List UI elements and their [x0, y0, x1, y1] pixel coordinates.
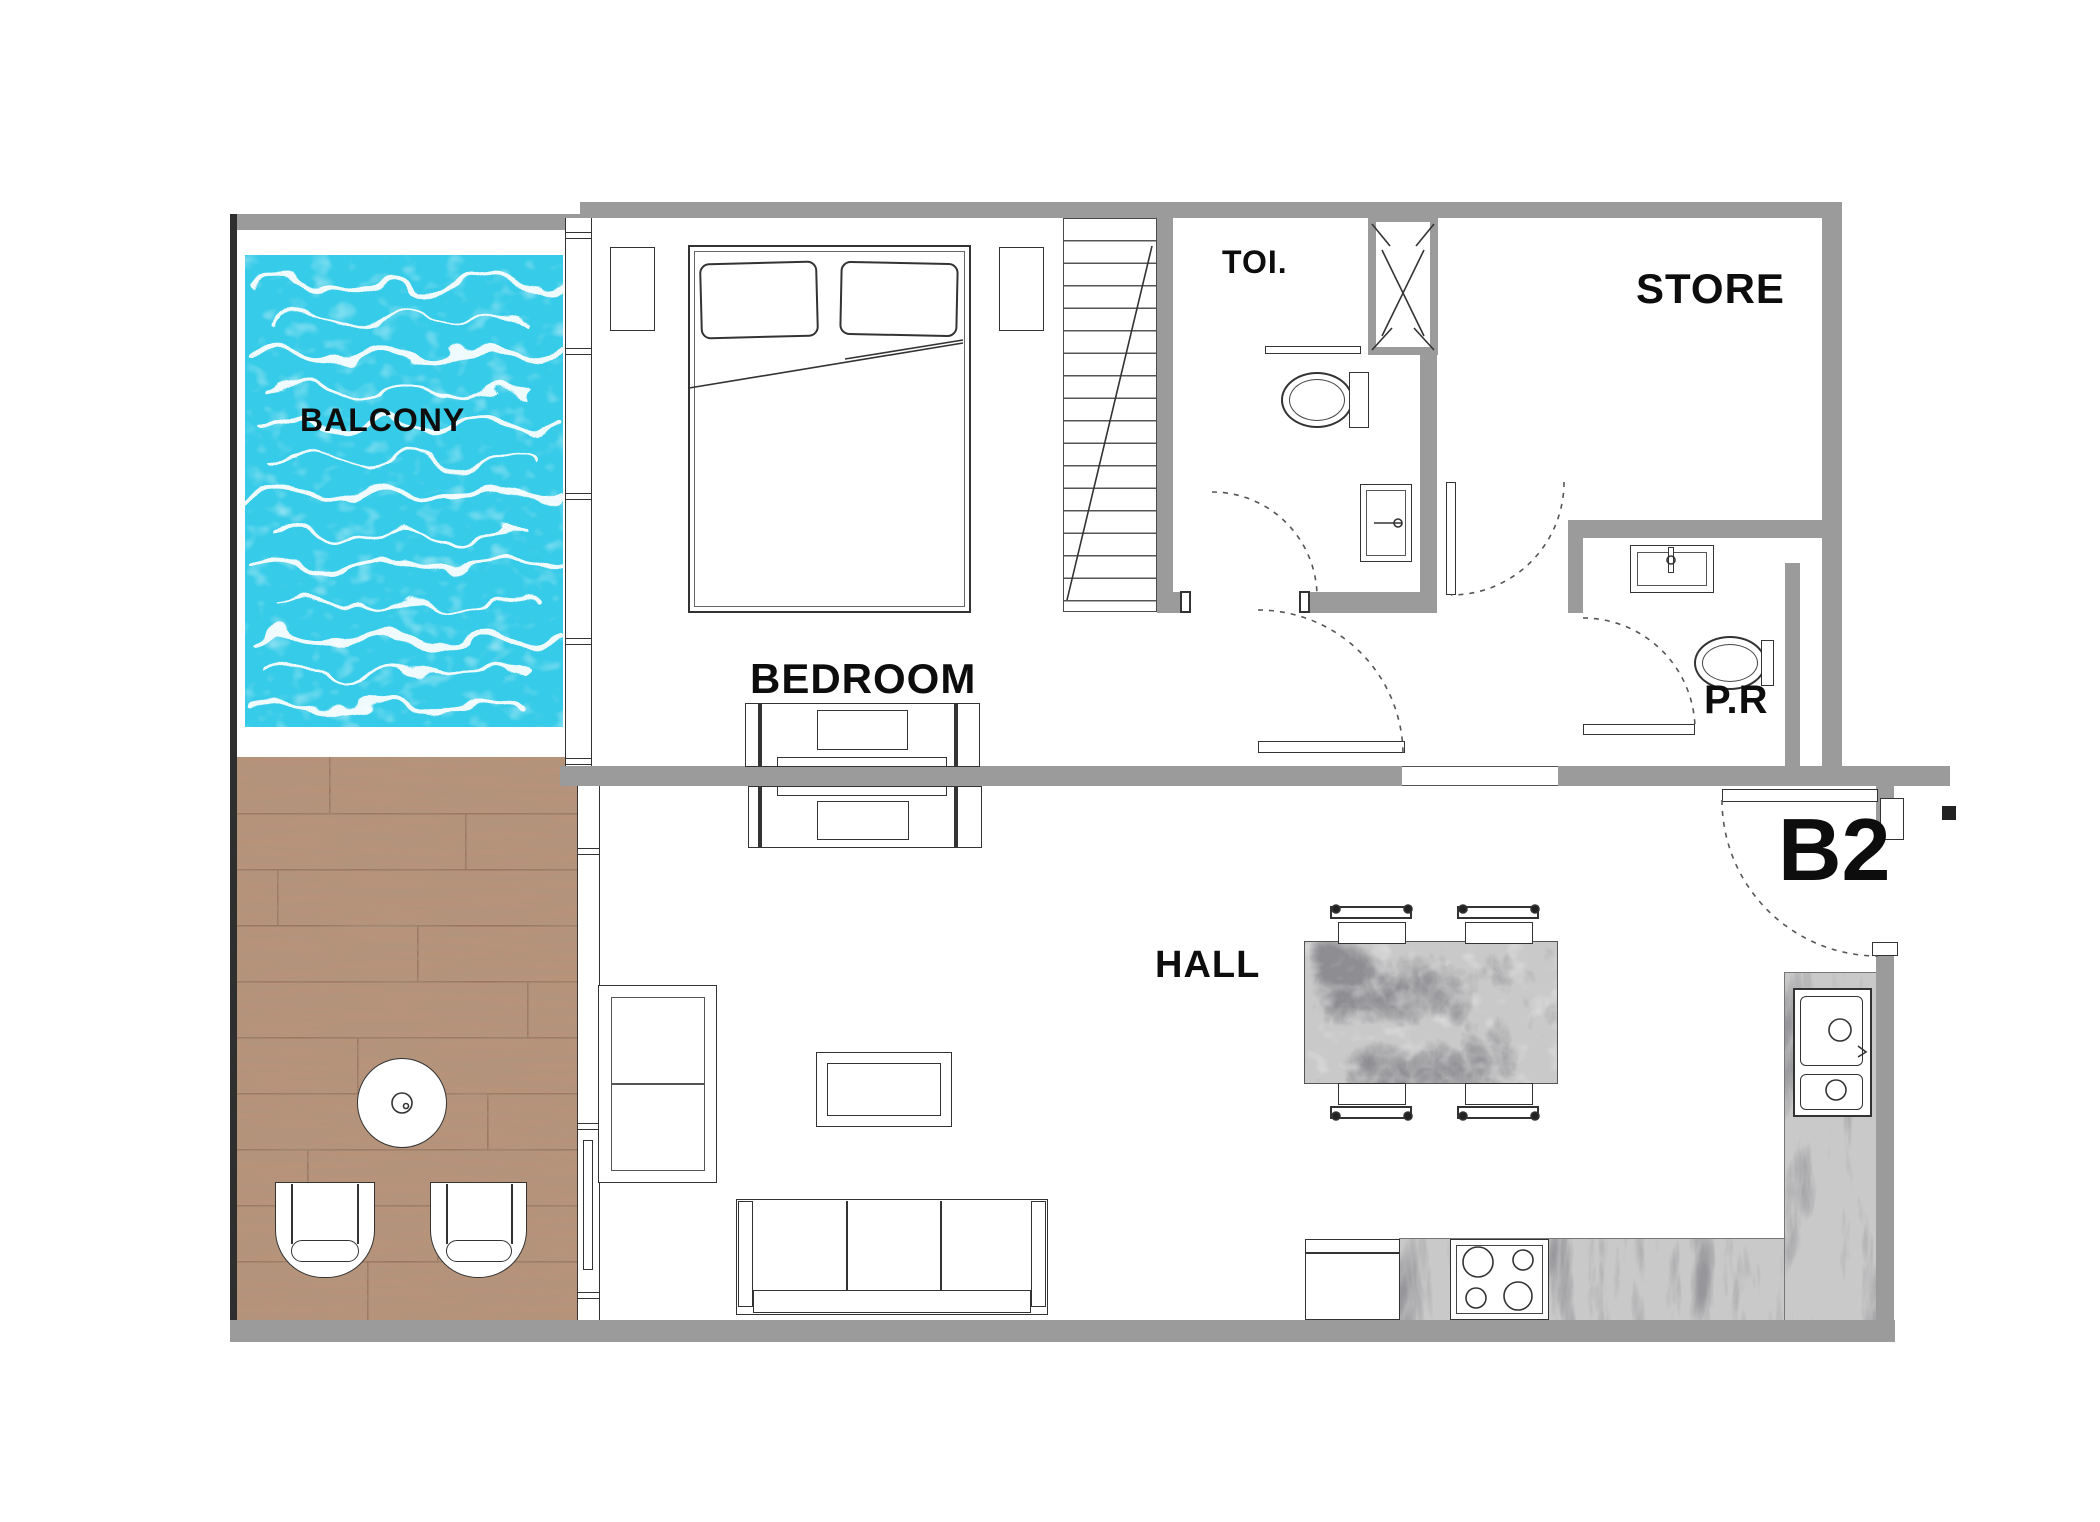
- hall-window-wall: [577, 786, 600, 1320]
- sink-basin-top: [1800, 996, 1863, 1066]
- sofa-back: [753, 1290, 1031, 1313]
- window-mullion: [566, 758, 591, 765]
- dishwasher-line: [1305, 1252, 1400, 1254]
- bedroom-tv: [817, 710, 908, 750]
- dining-chair-seat: [1338, 922, 1406, 944]
- sofa-cushion-divider: [846, 1201, 848, 1290]
- wall-left-outer: [230, 214, 237, 1324]
- balcony-pool-water: [245, 255, 563, 727]
- label-hall: HALL: [1155, 946, 1260, 984]
- console-end-post: [954, 703, 958, 767]
- toi-wc-tank: [1349, 372, 1369, 428]
- window-mullion: [566, 232, 591, 239]
- window-mullion: [578, 848, 599, 855]
- entrance-door-jamb-bottom: [1872, 942, 1898, 956]
- dining-chair-back: [1457, 1106, 1539, 1119]
- sink-basin-bottom: [1800, 1074, 1863, 1110]
- wall-top-balcony: [230, 214, 580, 230]
- wall-entry-top: [1558, 766, 1950, 786]
- window-mullion: [566, 493, 591, 500]
- label-powder-room: P.R: [1704, 680, 1769, 720]
- label-store: STORE: [1636, 268, 1785, 310]
- deck-chair-line: [446, 1184, 448, 1244]
- sofa-arm-left: [738, 1201, 753, 1307]
- corridor-door-swing-arc: [1258, 610, 1403, 755]
- wall-store-pr-divider: [1568, 520, 1842, 538]
- console-end-post: [758, 703, 762, 767]
- console-end-post: [954, 786, 958, 848]
- toi-wc-bowl-inner: [1289, 379, 1345, 421]
- wall-bottom: [230, 1320, 1895, 1342]
- toi-door-swing-arc: [1212, 492, 1317, 597]
- deck-chair-line: [357, 1184, 359, 1244]
- cooktop-inner: [1456, 1245, 1543, 1314]
- armchair-cushion-divider: [611, 1083, 705, 1085]
- wall-right-lower: [1876, 942, 1894, 1322]
- coffee-table-inner: [827, 1063, 941, 1116]
- floor-plan-b2: BALCONY BEDROOM TOI. STORE P.R HALL B2: [0, 0, 2100, 1522]
- bedroom-window-wall: [565, 218, 592, 766]
- pillow-right: [839, 261, 959, 337]
- deck-chair-line: [291, 1184, 293, 1244]
- deck-chair-left: [275, 1182, 375, 1278]
- corridor-door-leaf: [1258, 741, 1405, 753]
- lobby-door-leaf: [1446, 482, 1456, 595]
- window-mullion: [566, 348, 591, 355]
- dining-chair-seat: [1465, 922, 1533, 944]
- hall-console-ledge: [777, 786, 947, 796]
- pr-door-swing-arc: [1583, 618, 1695, 730]
- dining-chair-back: [1330, 1106, 1412, 1119]
- console-end-post: [758, 786, 762, 848]
- hall-tv: [817, 801, 909, 840]
- staircase: [1063, 218, 1157, 612]
- label-toilet: TOI.: [1222, 246, 1288, 278]
- dining-table-marble-top: [1305, 942, 1557, 1083]
- wall-toi-door-stub-right: [1310, 592, 1420, 613]
- wall-top-main: [580, 202, 1842, 218]
- dining-chair-seat: [1338, 1083, 1406, 1105]
- toi-washbasin-inner: [1366, 490, 1406, 556]
- wall-pr-left-stub: [1568, 538, 1583, 613]
- sofa-arm-right: [1031, 1201, 1046, 1307]
- toi-shelf: [1265, 346, 1361, 354]
- pr-door-leaf: [1583, 724, 1695, 735]
- bedroom-console-ledge: [777, 757, 947, 767]
- nightstand-left: [610, 247, 655, 331]
- deck-round-table: [357, 1058, 447, 1148]
- toi-door-post-left: [1180, 591, 1191, 613]
- wall-pr-right: [1785, 563, 1800, 766]
- deck-chair-cushion: [446, 1240, 512, 1262]
- dining-chair-back: [1457, 906, 1539, 919]
- wall-end-tick: [1942, 806, 1956, 820]
- nightstand-right: [999, 247, 1044, 331]
- sliding-door-panel: [583, 1140, 593, 1270]
- deck-chair-cushion: [291, 1240, 359, 1262]
- lobby-door-swing-arc: [1451, 482, 1564, 595]
- window-mullion: [578, 1123, 599, 1130]
- toi-door-post-right: [1299, 591, 1310, 613]
- label-balcony: BALCONY: [300, 404, 465, 436]
- window-mullion: [578, 1292, 599, 1299]
- wall-right-outer: [1822, 202, 1842, 786]
- cased-opening-hall-corridor: [1402, 766, 1558, 786]
- dining-chair-back: [1330, 906, 1412, 919]
- duct-shaft: [1368, 214, 1438, 355]
- label-bedroom: BEDROOM: [750, 658, 976, 700]
- deck-chair-line: [511, 1184, 513, 1244]
- sofa-cushion-divider: [940, 1201, 942, 1290]
- dining-chair-seat: [1465, 1083, 1533, 1105]
- window-mullion: [566, 638, 591, 645]
- wall-bedroom-hall-divider: [560, 766, 1402, 786]
- wall-stair-right: [1157, 218, 1173, 613]
- label-unit-number: B2: [1778, 806, 1891, 894]
- pillow-left: [699, 260, 819, 339]
- pr-wc-bowl-inner: [1702, 644, 1758, 682]
- pr-faucet: [1668, 547, 1674, 573]
